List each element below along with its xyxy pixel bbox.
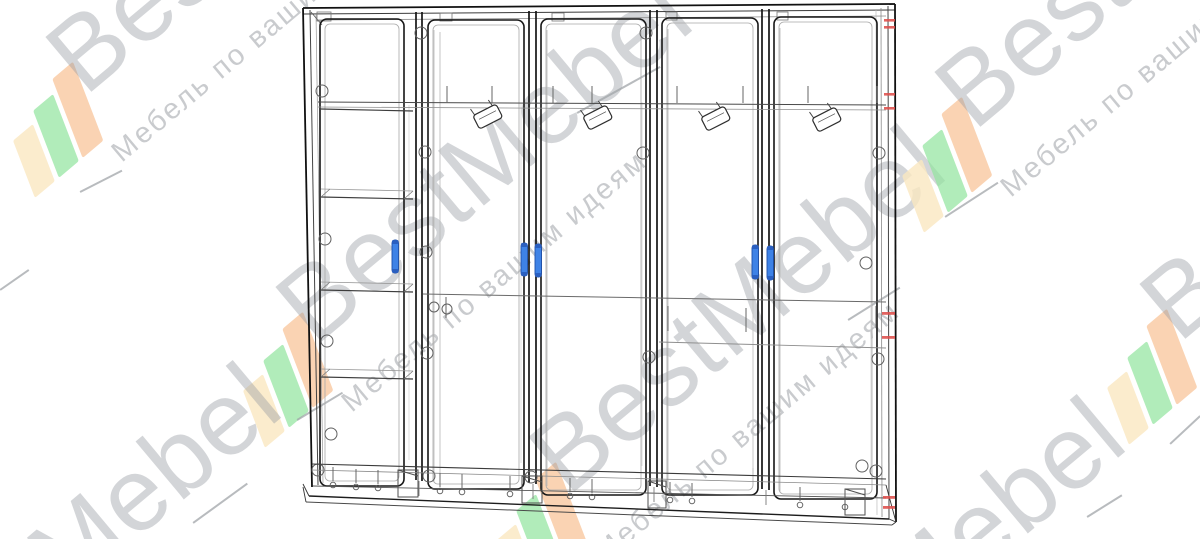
door-handle — [535, 244, 542, 277]
section-dividers — [416, 9, 769, 490]
hanger-bracket — [809, 101, 842, 132]
door-3 — [541, 19, 646, 495]
door-handle — [521, 243, 528, 276]
mid-shelf-line — [423, 294, 886, 302]
door-2 — [428, 20, 524, 489]
screenshot-root: BestMebel Мебель по вашим идеям BestMebe… — [0, 0, 1200, 539]
doors — [320, 17, 877, 499]
wardrobe-drawing — [0, 0, 1200, 539]
door-handle — [392, 240, 399, 273]
right-sections-rail-line — [659, 342, 886, 348]
door-5 — [774, 17, 877, 499]
door-handle — [752, 245, 759, 279]
door-1 — [320, 19, 404, 486]
door-handles — [392, 240, 774, 280]
door-4 — [662, 18, 758, 495]
door-handle — [767, 246, 774, 280]
